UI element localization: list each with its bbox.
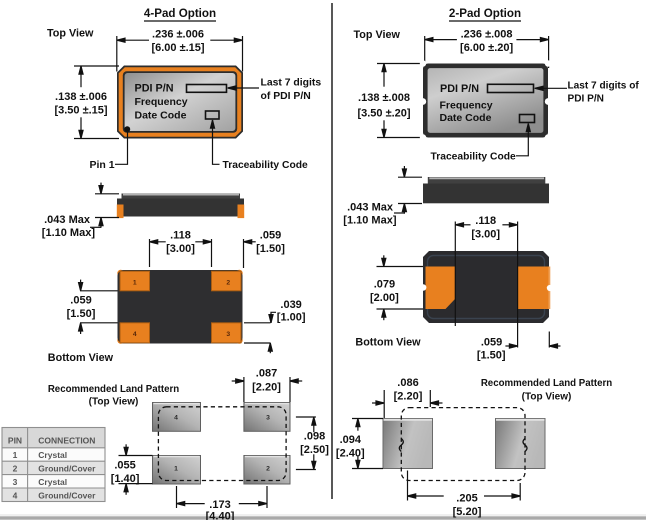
svg-text:PDI P/N: PDI P/N [440, 83, 479, 95]
svg-text:[3.50 ±.20]: [3.50 ±.20] [357, 108, 410, 120]
svg-text:.138 ±.006: .138 ±.006 [55, 91, 107, 103]
svg-text:[1.40]: [1.40] [111, 473, 140, 485]
svg-text:[1.50]: [1.50] [477, 350, 506, 362]
svg-text:.059: .059 [260, 230, 281, 242]
svg-text:.138 ±.008: .138 ±.008 [358, 92, 410, 104]
svg-text:Last 7 digits: Last 7 digits [261, 78, 322, 89]
svg-text:.173: .173 [209, 499, 230, 511]
svg-text:2-Pad Option: 2-Pad Option [449, 7, 521, 20]
svg-text:[2.40]: [2.40] [336, 447, 365, 459]
svg-text:.087: .087 [256, 368, 277, 380]
svg-text:4: 4 [133, 331, 137, 338]
svg-text:.094: .094 [340, 434, 362, 446]
svg-text:1: 1 [133, 279, 137, 286]
svg-text:[2.50]: [2.50] [300, 444, 329, 456]
svg-text:.043 Max: .043 Max [347, 202, 394, 214]
svg-text:4: 4 [13, 490, 18, 500]
svg-text:Ground/Cover: Ground/Cover [38, 490, 96, 500]
svg-text:Ground/Cover: Ground/Cover [38, 464, 96, 474]
svg-text:.205: .205 [456, 492, 477, 504]
svg-text:[1.10 Max]: [1.10 Max] [42, 227, 96, 239]
svg-text:CONNECTION: CONNECTION [38, 436, 95, 446]
svg-text:.059: .059 [70, 295, 91, 307]
svg-text:Frequency: Frequency [440, 100, 493, 112]
svg-text:.043 Max: .043 Max [44, 214, 91, 226]
svg-text:.059: .059 [481, 336, 502, 348]
svg-text:.118: .118 [170, 230, 191, 242]
svg-text:[2.00]: [2.00] [370, 292, 399, 304]
svg-text:Traceability Code: Traceability Code [223, 160, 309, 171]
svg-text:3: 3 [13, 477, 18, 487]
svg-text:[5.20]: [5.20] [453, 506, 482, 518]
svg-text:[1.50]: [1.50] [67, 308, 96, 320]
svg-text:3: 3 [266, 415, 270, 422]
svg-text:1: 1 [13, 450, 18, 460]
svg-text:3: 3 [226, 331, 230, 338]
svg-text:of PDI P/N: of PDI P/N [261, 91, 311, 102]
svg-text:PDI P/N: PDI P/N [135, 83, 174, 95]
svg-text:[3.50 ±.15]: [3.50 ±.15] [54, 105, 107, 117]
svg-text:Crystal: Crystal [38, 477, 67, 487]
svg-text:PDI P/N: PDI P/N [568, 94, 604, 105]
svg-text:.086: .086 [397, 377, 418, 389]
svg-text:[1.10 Max]: [1.10 Max] [343, 215, 397, 227]
svg-text:[2.20]: [2.20] [394, 391, 423, 403]
svg-text:[6.00 ±.15]: [6.00 ±.15] [151, 42, 204, 54]
svg-text:[3.00]: [3.00] [471, 228, 500, 240]
svg-text:Last 7 digits of: Last 7 digits of [568, 81, 640, 92]
svg-text:[4.40]: [4.40] [206, 510, 235, 520]
svg-text:.118: .118 [475, 215, 496, 227]
svg-text:2: 2 [13, 464, 18, 474]
svg-text:.039: .039 [280, 299, 301, 311]
svg-text:4-Pad Option: 4-Pad Option [144, 7, 216, 20]
svg-text:.079: .079 [374, 278, 395, 290]
svg-text:[1.50]: [1.50] [256, 243, 285, 255]
svg-text:Crystal: Crystal [38, 450, 67, 460]
svg-text:(Top View): (Top View) [522, 392, 572, 403]
svg-text:PIN: PIN [8, 436, 22, 446]
svg-text:[6.00 ±.20]: [6.00 ±.20] [460, 42, 513, 54]
svg-text:Pin 1: Pin 1 [90, 159, 115, 171]
svg-text:(Top View): (Top View) [89, 397, 139, 408]
svg-text:Traceability Code: Traceability Code [431, 152, 517, 163]
svg-text:Bottom View: Bottom View [355, 337, 421, 349]
svg-text:Date Code: Date Code [440, 112, 492, 124]
svg-text:.055: .055 [114, 459, 135, 471]
svg-text:Recommended Land Pattern: Recommended Land Pattern [48, 384, 179, 395]
svg-text:Top View: Top View [47, 28, 94, 40]
svg-text:Bottom View: Bottom View [48, 352, 114, 364]
svg-text:Date Code: Date Code [135, 110, 187, 122]
svg-text:Recommended Land Pattern: Recommended Land Pattern [481, 378, 612, 389]
svg-text:4: 4 [174, 415, 178, 422]
svg-text:2: 2 [226, 279, 230, 286]
svg-text:[1.00]: [1.00] [277, 312, 306, 324]
svg-text:[2.20]: [2.20] [252, 381, 281, 393]
svg-text:.098: .098 [304, 431, 325, 443]
svg-text:.236 ±.008: .236 ±.008 [461, 29, 513, 41]
svg-text:Top View: Top View [354, 29, 401, 41]
svg-text:1: 1 [174, 466, 178, 473]
svg-text:2: 2 [266, 466, 270, 473]
svg-text:Frequency: Frequency [135, 96, 188, 108]
svg-text:[3.00]: [3.00] [166, 243, 195, 255]
svg-text:.236 ±.006: .236 ±.006 [152, 29, 204, 41]
